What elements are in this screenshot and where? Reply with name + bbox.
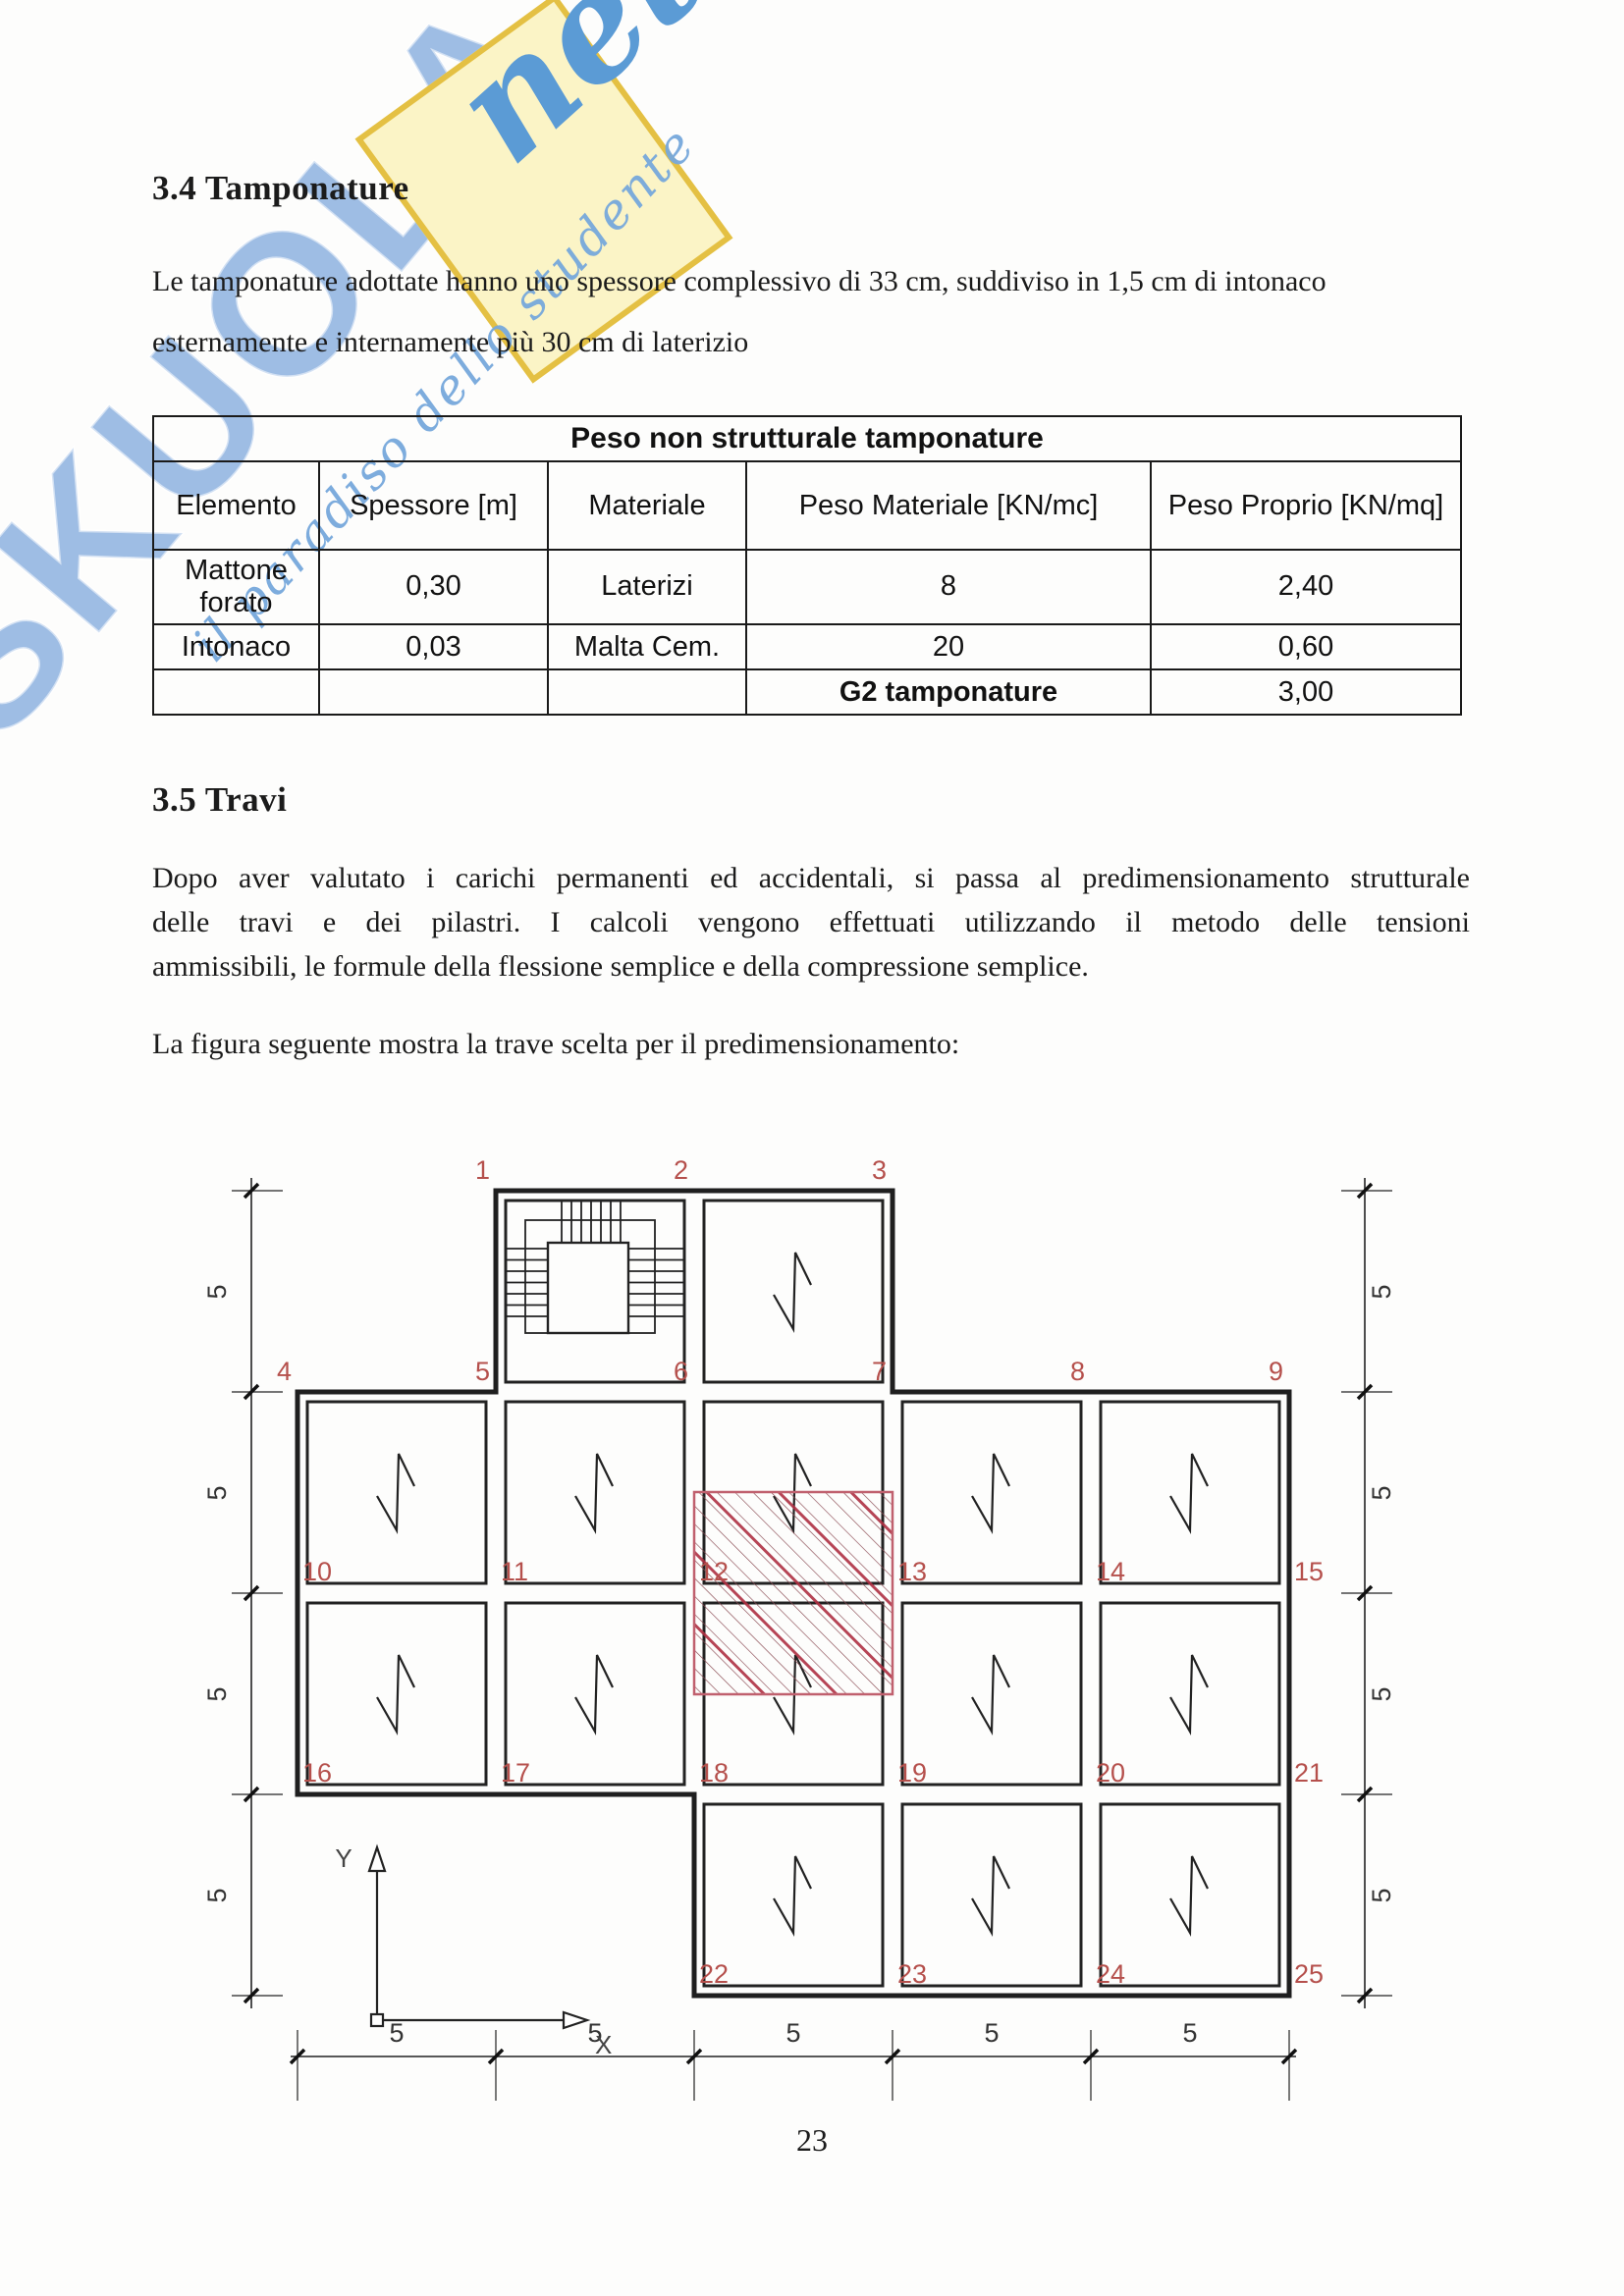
empty-cell [153,669,319,715]
dim-label: 5 [1367,1284,1396,1299]
heading-tamponature: 3.4 Tamponature [152,169,409,208]
travi-paragraph-line3: ammissibili, le formule della flessione … [152,950,1089,984]
y-axis-arrowhead [369,1847,385,1871]
dim-label: 5 [984,2018,999,2048]
axis-origin-square [371,2014,383,2026]
grid-point-label: 9 [1269,1357,1283,1386]
table-cell: 20 [746,624,1151,669]
grid-point-label: 5 [475,1357,490,1386]
table-row: Intonaco 0,03 Malta Cem. 20 0,60 [153,624,1461,669]
table-cell: Laterizi [548,550,746,624]
grid-point-label: 21 [1294,1758,1324,1788]
peso-tamponature-table: Peso non strutturale tamponature Element… [152,415,1462,716]
table-total-value: 3,00 [1151,669,1461,715]
stair-right-flight-treads [628,1249,684,1316]
dim-label: 5 [202,1485,232,1500]
figure-intro-line: La figura seguente mostra la trave scelt… [152,1028,959,1061]
table-cell: 0,60 [1151,624,1461,669]
grid-point-label: 14 [1096,1557,1125,1586]
floor-plan-figure: 5 5 5 5 5 5 5 5 5 5 5 [0,1129,1624,2120]
heading-travi: 3.5 Travi [152,780,287,820]
grid-point-label: 25 [1294,1959,1324,1989]
grid-point-label: 7 [872,1357,887,1386]
hatch-area [694,1492,893,1694]
dim-label: 5 [389,2018,404,2048]
dim-label: 5 [202,1888,232,1902]
x-axis-arrowhead [564,2012,587,2028]
travi-paragraph-line1: Dopo aver valutato i carichi permanenti … [152,862,1470,895]
dim-label: 5 [1182,2018,1197,2048]
table-header-row: Elemento Spessore [m] Materiale Peso Mat… [153,461,1461,550]
col-header-peso-materiale: Peso Materiale [KN/mc] [746,461,1151,550]
table-cell: Mattone forato [153,550,319,624]
grid-point-label: 6 [674,1357,688,1386]
y-axis-label: Y [335,1843,352,1873]
grid-point-label: 4 [277,1357,292,1386]
dim-label: 5 [202,1284,232,1299]
dim-label: 5 [1367,1485,1396,1500]
dim-label: 5 [202,1686,232,1701]
col-header-peso-proprio: Peso Proprio [KN/mq] [1151,461,1461,550]
grid-point-label: 2 [674,1155,688,1185]
grid-point-label: 1 [475,1155,490,1185]
table-cell: 8 [746,550,1151,624]
grid-point-label: 3 [872,1155,887,1185]
stair-cell [506,1201,684,1382]
table-title-row: Peso non strutturale tamponature [153,416,1461,461]
grid-point-label: 17 [501,1758,530,1788]
grid-point-label: 20 [1096,1758,1125,1788]
grid-point-label: 13 [897,1557,927,1586]
travi-paragraph-line2: delle travi e dei pilastri. I calcoli ve… [152,906,1470,939]
grid-point-label: 16 [302,1758,332,1788]
table-cell: 0,03 [319,624,548,669]
grid-point-label: 10 [302,1557,332,1586]
table-row: Mattone forato 0,30 Laterizi 8 2,40 [153,550,1461,624]
axis-icon [369,1847,587,2028]
col-header-spessore: Spessore [m] [319,461,548,550]
grid-point-label: 11 [501,1557,528,1586]
empty-cell [548,669,746,715]
empty-cell [319,669,548,715]
stair-top-flight-treads [562,1201,621,1243]
dim-label: 5 [1367,1686,1396,1701]
page-number: 23 [0,2122,1624,2159]
document-page: SKUOLA net il paradiso dello studente 3.… [0,0,1624,2296]
x-axis-label: X [595,2030,612,2059]
stair-left-flight-treads [506,1249,548,1316]
table-cell: Intonaco [153,624,319,669]
grid-point-label: 12 [699,1557,729,1586]
tamponature-paragraph-line1: Le tamponature adottate hanno uno spesso… [152,265,1326,298]
grid-point-label: 18 [699,1758,729,1788]
tamponature-paragraph-line2: esternamente e internamente più 30 cm di… [152,326,748,359]
dimension-left: 5 5 5 5 [202,1178,283,2008]
table-title: Peso non strutturale tamponature [153,416,1461,461]
dimension-bottom: 5 5 5 5 5 [291,2018,1296,2101]
grid-point-label: 8 [1070,1357,1085,1386]
grid-point-label: 19 [897,1758,927,1788]
grid-point-label: 23 [897,1959,927,1989]
table-total-row: G2 tamponature 3,00 [153,669,1461,715]
staircase [506,1201,684,1333]
dim-label: 5 [785,2018,800,2048]
dimension-right: 5 5 5 5 [1341,1178,1396,2008]
col-header-elemento: Elemento [153,461,319,550]
dim-label: 5 [1367,1888,1396,1902]
table-total-label: G2 tamponature [746,669,1151,715]
col-header-materiale: Materiale [548,461,746,550]
travi-paragraph-line2-wrap: delle travi e dei pilastri. I calcoli ve… [152,906,1470,939]
travi-paragraph: Dopo aver valutato i carichi permanenti … [152,862,1470,895]
grid-point-label: 15 [1294,1557,1324,1586]
grid-point-label: 22 [699,1959,729,1989]
table-cell: Malta Cem. [548,624,746,669]
grid-point-label: 24 [1096,1959,1125,1989]
table-cell: 2,40 [1151,550,1461,624]
table-cell: 0,30 [319,550,548,624]
